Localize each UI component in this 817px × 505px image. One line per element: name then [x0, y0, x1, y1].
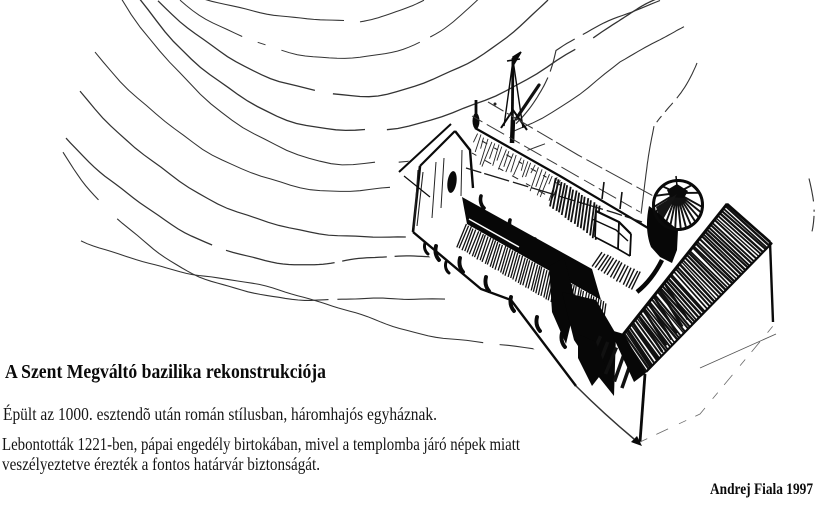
- svg-text:veszélyeztetve érezték a fonto: veszélyeztetve érezték a fontos határvár…: [2, 454, 320, 474]
- svg-text:A Szent Megváltó bazilika reko: A Szent Megváltó bazilika rekonstrukciój…: [5, 361, 326, 383]
- svg-text:Lebontották 1221-ben, pápai en: Lebontották 1221-ben, pápai engedély bir…: [2, 434, 520, 454]
- svg-text:Épült az 1000. esztendõ után r: Épült az 1000. esztendõ után román stílu…: [3, 403, 437, 424]
- svg-text:Andrej Fiala 1997: Andrej Fiala 1997: [710, 481, 813, 498]
